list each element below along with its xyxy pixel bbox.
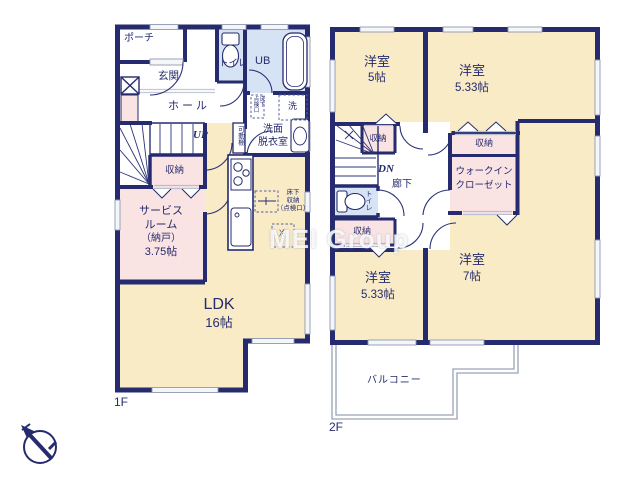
label-laundry: 洗 (288, 102, 297, 111)
label-room7-size: 7帖 (463, 272, 481, 284)
label-room533t-size: 5.33帖 (455, 83, 489, 95)
label-hall: ホール (168, 101, 210, 112)
label-room533b-size: 5.33帖 (361, 290, 395, 302)
pillar-x-box (121, 77, 139, 94)
label-balcony: バルコニー (367, 376, 422, 386)
watermark-text: MEI Group (269, 224, 409, 255)
label-wic-2: クローゼット (455, 181, 512, 191)
label-toilet-2f: トイレ (365, 190, 372, 211)
label-entrance: 玄関 (158, 71, 179, 82)
label-storage-1f: 収納 (165, 166, 184, 176)
label-service-1: サービス (139, 206, 183, 217)
label-stairs-up: UP (193, 130, 208, 141)
label-wic-1: ウォークイン (455, 167, 512, 177)
label-floor1: 1F (114, 396, 128, 408)
balcony-outline (332, 345, 518, 419)
label-movable-shelf: 可動棚 (236, 126, 243, 146)
label-underfloor-3: （点検口） (277, 206, 310, 213)
label-service-2: ルーム (145, 220, 178, 231)
label-stairs-down: DN (378, 164, 394, 175)
washbasin-fixture (291, 119, 309, 152)
label-ldk: LDK (203, 297, 234, 313)
label-room533t-name: 洋室 (459, 64, 485, 77)
kitchen-counter (228, 155, 253, 250)
floor-plan-page: ポーチ 玄関 ホール トイレ UB 洗 床下 点検口 洗面 脱衣室 可動棚 UP… (0, 0, 640, 480)
label-unit-bath: UB (255, 56, 270, 67)
compass-icon (21, 424, 56, 463)
label-hatch-left: 点検口 (252, 96, 258, 113)
label-storage-right-2f: 収納 (475, 139, 493, 148)
label-service-4: 3.75帖 (145, 247, 177, 258)
label-room5-size: 5帖 (368, 73, 386, 85)
label-room533b-name: 洋室 (365, 271, 391, 284)
label-washroom-2: 脱衣室 (258, 138, 288, 148)
label-washroom-1: 洗面 (263, 125, 283, 135)
label-underfloor-2: 収納 (287, 198, 300, 205)
label-porch: ポーチ (124, 34, 154, 44)
label-room5-name: 洋室 (364, 55, 390, 68)
label-corridor: 廊下 (392, 180, 412, 190)
label-underfloor-1: 床下 (287, 190, 300, 197)
label-floor2: 2F (329, 421, 343, 433)
bathtub-fixture (283, 33, 307, 90)
label-toilet-1f: トイレ (219, 59, 248, 69)
label-room7-name: 洋室 (459, 253, 485, 266)
label-service-3: （納戸） (141, 234, 181, 244)
label-ldk-size: 16帖 (205, 316, 232, 329)
label-storage-stairs-2f: 収納 (369, 134, 386, 143)
